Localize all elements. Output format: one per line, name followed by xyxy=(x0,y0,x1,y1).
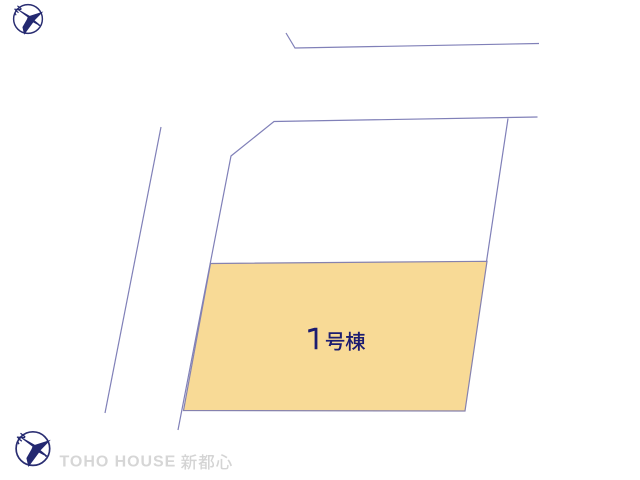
svg-text:TOHO HOUSE: TOHO HOUSE xyxy=(60,454,177,471)
